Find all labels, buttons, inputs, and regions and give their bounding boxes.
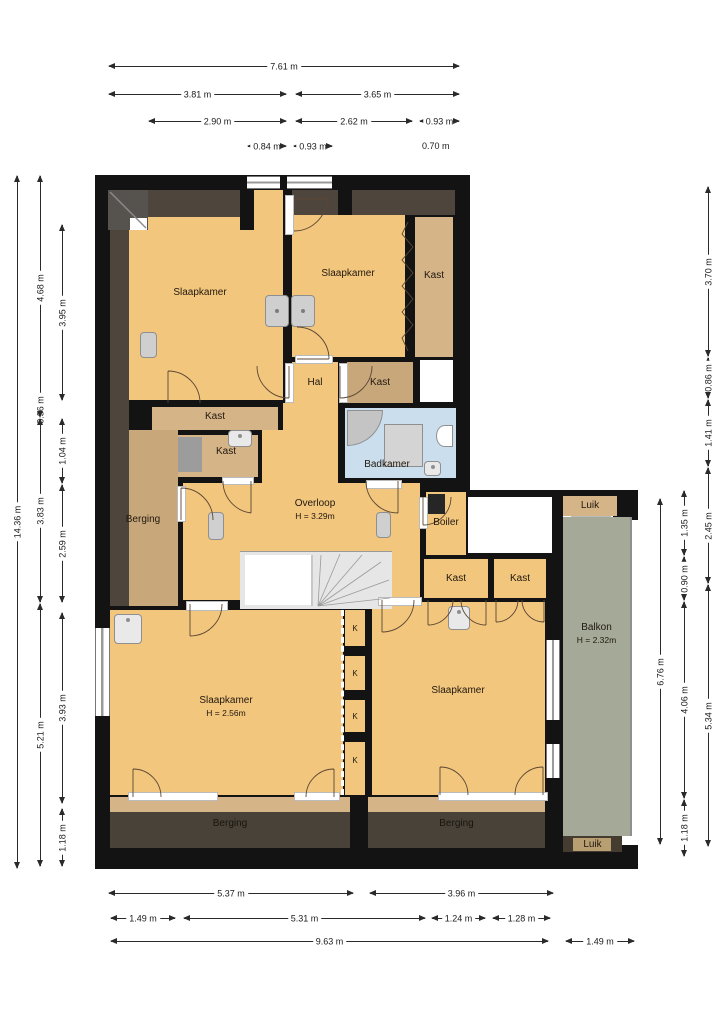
- dimension: 1.49 m: [110, 914, 176, 923]
- radiator-bedroom-tl: [140, 332, 157, 358]
- bedroom-top-right-floor: [292, 215, 405, 357]
- k-sliding-track: [341, 610, 344, 795]
- dimension: 2.62 m: [295, 117, 413, 126]
- k-cell-label-1: K: [345, 622, 365, 634]
- room-label-storage-bl: Berging: [140, 816, 320, 830]
- dimension: 1.24 m: [431, 914, 486, 923]
- dimension: 3.93 m: [58, 612, 67, 804]
- floor-plan-page: Slaapkamer Slaapkamer Kast Hal Kast Badk…: [0, 0, 724, 1024]
- dimension: 0.70 m: [422, 141, 450, 151]
- window-left: [95, 628, 110, 716]
- void-mid: [468, 497, 552, 553]
- dimension: 2.59 m: [58, 484, 67, 603]
- dimension: 3.95 m: [58, 224, 67, 401]
- door-gap-bedrooms-top: [285, 195, 294, 235]
- dimension: 5.31 m: [183, 914, 426, 923]
- room-label-bedroom-bl-height: H = 2.56m: [143, 707, 309, 719]
- room-label-bedroom-bl: Slaapkamer: [143, 693, 309, 707]
- dimension: 5.21 m: [36, 603, 45, 867]
- door-gap-storage: [177, 486, 186, 522]
- dimension: 0.36 m: [36, 401, 45, 418]
- room-label-closet-r1: Kast: [424, 571, 488, 585]
- k-column-floor: [345, 610, 365, 795]
- closet-top-right-floor: [415, 217, 453, 357]
- balcony-door: [546, 640, 560, 720]
- balcony-floor: [563, 517, 632, 836]
- door-gap-bedroom-hall: [295, 355, 333, 364]
- bedroom-top-left-floor: [129, 217, 283, 400]
- window-top-2: [287, 176, 332, 189]
- dimension: 0.93 m: [293, 142, 333, 151]
- dimension: 4.06 m: [680, 601, 689, 799]
- wall-stub-1: [240, 190, 254, 230]
- dimension: 2.45 m: [704, 467, 713, 584]
- dimension: 3.70 m: [704, 186, 713, 357]
- window-top-1: [247, 176, 280, 189]
- room-label-closet-mid: Kast: [196, 444, 256, 458]
- bedroom-bottom-right-floor: [372, 602, 545, 795]
- boiler-unit: [428, 494, 445, 514]
- room-label-storage-br: Berging: [370, 816, 543, 830]
- bedroom-top-left-floor2: [253, 190, 283, 217]
- dimension: 2.90 m: [148, 117, 287, 126]
- room-label-bedroom-br: Slaapkamer: [380, 683, 536, 697]
- wardrobe-left: [265, 295, 289, 327]
- sink-bathroom: [424, 461, 441, 476]
- door-gap-closet-mid: [222, 477, 254, 485]
- room-label-bedroom-tl: Slaapkamer: [140, 285, 260, 299]
- dimension: 9.63 m: [110, 937, 549, 946]
- room-label-closet-hall: Kast: [347, 375, 413, 389]
- dimension: 3.81 m: [108, 90, 287, 99]
- room-label-bedroom-tr: Slaapkamer: [292, 266, 404, 280]
- door-gap-bedroom-br-top: [378, 597, 422, 606]
- sink-bedroom-bl: [114, 614, 142, 644]
- k-cell-label-3: K: [345, 710, 365, 722]
- sink-bedroom-br: [448, 606, 470, 630]
- dimension: 5.37 m: [108, 889, 354, 898]
- dimension: 1.04 m: [58, 418, 67, 484]
- room-label-closet-r2: Kast: [494, 571, 546, 585]
- dimension: 3.96 m: [369, 889, 554, 898]
- k-divider-3: [345, 732, 365, 742]
- dimension: 1.28 m: [492, 914, 551, 923]
- dimension: 0.84 m: [247, 142, 287, 151]
- k-divider-1: [345, 646, 365, 656]
- room-label-landing-height: H = 3.29m: [250, 510, 380, 522]
- dimension: 0.90 m: [680, 556, 689, 601]
- void-upper: [420, 360, 453, 402]
- room-label-hatch-bottom: Luik: [563, 838, 622, 851]
- room-label-boiler: Boiler: [422, 516, 470, 529]
- dimension: 0.86 m: [704, 357, 713, 399]
- door-gap-bedroom-bl-top: [186, 601, 228, 611]
- dimension: 14.36 m: [13, 175, 22, 869]
- toilet: [436, 425, 453, 447]
- dimension: 3.83 m: [36, 418, 45, 603]
- stairwell-opening: [245, 555, 311, 605]
- room-label-hatch-top: Luik: [563, 499, 617, 512]
- radiator-landing-left: [208, 512, 224, 540]
- dimension: 1.18 m: [680, 799, 689, 857]
- door-gap-bathroom: [366, 480, 402, 489]
- door-gap-bl-bottom-1: [128, 792, 218, 801]
- dimension: 7.61 m: [108, 62, 460, 71]
- chimney-opening: [130, 218, 147, 230]
- wardrobe-right: [291, 295, 315, 327]
- dimension: 1.18 m: [58, 808, 67, 867]
- room-label-balcony-height: H = 2.32m: [563, 634, 630, 646]
- dimension: 5.34 m: [704, 584, 713, 847]
- dimension: 1.41 m: [704, 399, 713, 467]
- room-label-hall: Hal: [292, 375, 338, 389]
- room-label-closet-tr: Kast: [408, 268, 460, 282]
- knee-wall-strip-top-right: [292, 190, 455, 215]
- knee-wall-strip-left: [110, 217, 129, 606]
- room-label-closet-band: Kast: [152, 409, 278, 423]
- dimension: 4.68 m: [36, 175, 45, 401]
- dimension: 1.49 m: [565, 937, 635, 946]
- dimension: 6.76 m: [656, 498, 665, 845]
- k-cell-label-4: K: [345, 754, 365, 766]
- window-right-lower: [546, 744, 560, 778]
- room-label-balcony: Balkon: [563, 620, 630, 634]
- door-gap-bl-bottom-2: [294, 792, 340, 801]
- room-label-landing: Overloop: [250, 496, 380, 510]
- room-label-bathroom: Badkamer: [352, 458, 422, 471]
- dimension: 1.35 m: [680, 490, 689, 556]
- k-cell-label-2: K: [345, 667, 365, 679]
- dimension: 0.93 m: [419, 117, 460, 126]
- dimension: 3.65 m: [295, 90, 460, 99]
- k-divider-2: [345, 690, 365, 700]
- door-gap-br-bottom: [438, 792, 548, 801]
- room-label-storage-left: Berging: [108, 512, 178, 526]
